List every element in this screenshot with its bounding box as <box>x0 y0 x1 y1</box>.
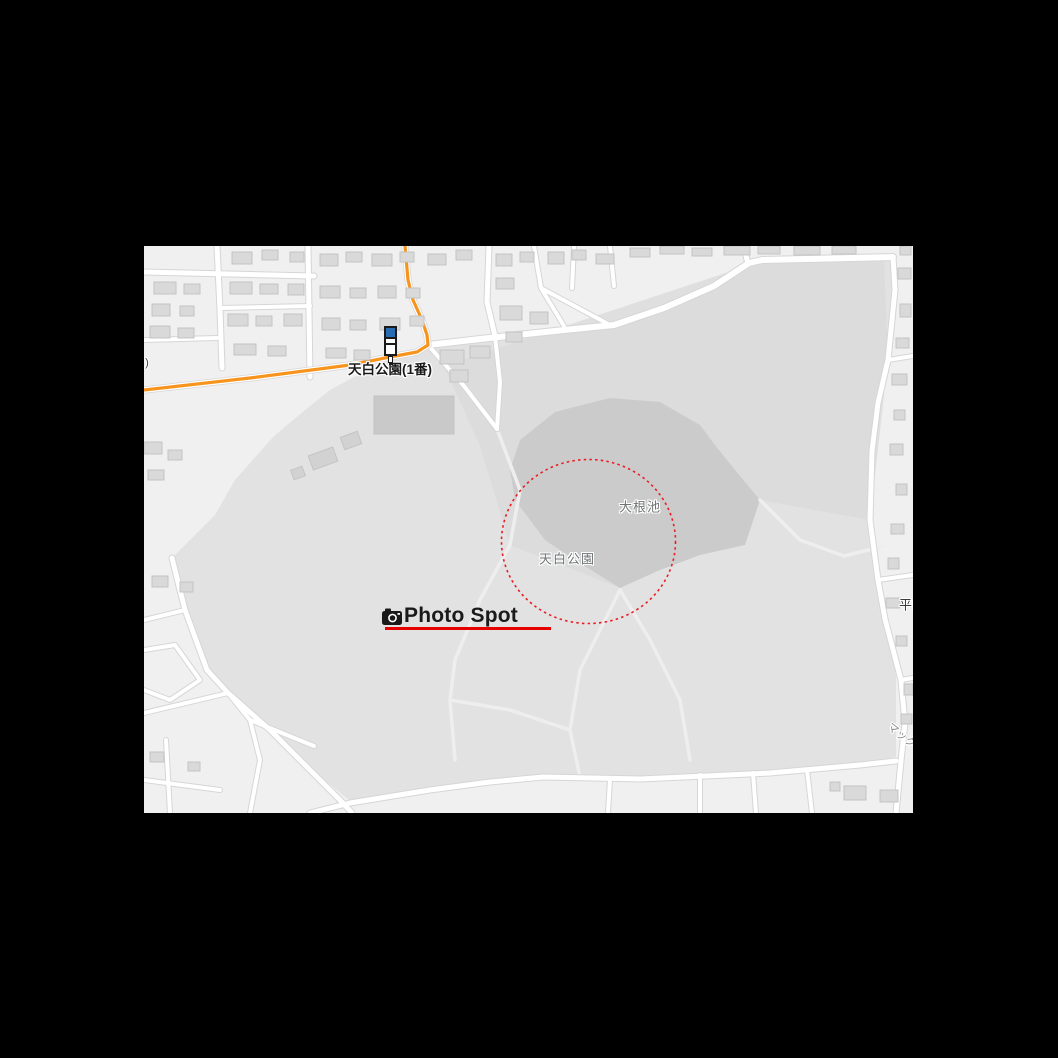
label-street-name-partial: ) <box>145 357 149 369</box>
map-base-layer <box>144 246 913 813</box>
bus-stop-marker-mid-segment <box>386 337 395 345</box>
bus-stop-marker-blue-segment <box>386 328 395 337</box>
bus-stop-pole-tip <box>389 362 393 365</box>
camera-icon <box>382 608 402 625</box>
photo-spot-label: Photo Spot <box>404 604 518 628</box>
screen-background: 天白公園(1番)大根池天白公園平針マック) Photo Spot <box>0 0 1058 1058</box>
map-viewport[interactable]: 天白公園(1番)大根池天白公園平針マック) Photo Spot <box>144 246 913 813</box>
label-district-name-partial: 平針 <box>899 595 913 614</box>
label-park-name: 天白公園 <box>539 549 595 568</box>
bus-stop-marker <box>384 326 397 356</box>
label-pond-name: 大根池 <box>619 497 661 516</box>
photo-spot-underline <box>385 627 551 630</box>
photo-spot-annotation: Photo Spot <box>382 603 518 629</box>
